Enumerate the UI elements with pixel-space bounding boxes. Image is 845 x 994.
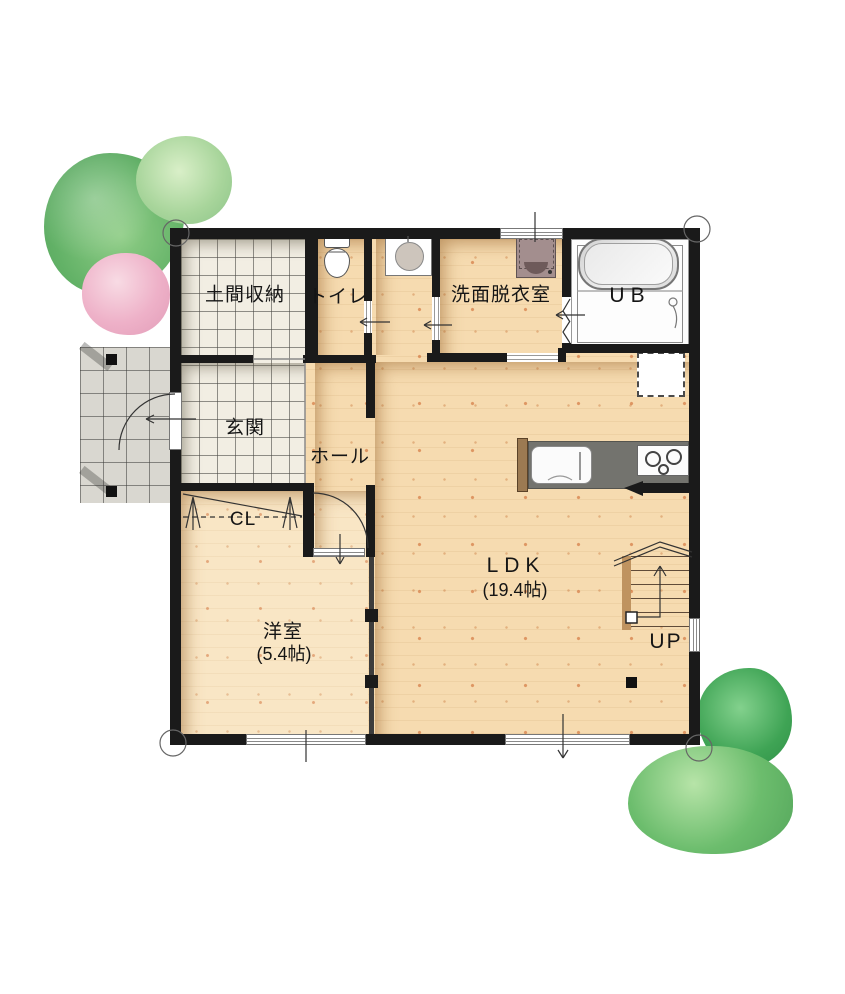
washbasin-bowl — [395, 242, 424, 271]
window — [689, 618, 700, 652]
wall — [181, 355, 253, 363]
room-label-ldk: LDK — [487, 554, 546, 578]
door-threshold — [313, 548, 365, 557]
tree-icon — [628, 746, 793, 854]
wall — [366, 363, 375, 418]
sliding-window — [505, 734, 630, 745]
door-opening — [562, 297, 571, 343]
wall — [303, 355, 376, 363]
porch-post — [106, 354, 117, 365]
tree-icon — [136, 136, 232, 224]
wall — [170, 450, 181, 745]
wall — [562, 344, 689, 353]
wall — [366, 734, 505, 745]
kitchen-end-panel — [517, 438, 528, 492]
stairs-edge — [622, 556, 631, 630]
wall — [303, 483, 314, 557]
bathtub-inner — [584, 243, 673, 285]
wall-post — [365, 675, 378, 688]
room-label-doma: 土間収納 — [205, 280, 285, 307]
wall — [181, 483, 303, 491]
wall — [427, 353, 507, 362]
kitchen-half-wall — [641, 483, 689, 493]
room-label-toilet: トイレ — [308, 282, 368, 309]
burner — [666, 449, 682, 465]
floorplan: 土間収納 トイレ 洗面脱衣室 UB 玄関 ホール CL 洋室 (5.4帖) LD… — [0, 0, 845, 994]
entrance-door-icon — [169, 392, 182, 450]
burner — [658, 464, 669, 475]
flower-bush-icon — [82, 253, 170, 335]
porch-post — [106, 486, 117, 497]
kitchen-sink-icon — [531, 446, 592, 484]
door-opening — [507, 353, 558, 362]
wall — [170, 734, 246, 745]
stairs-icon — [631, 556, 689, 632]
pillar — [626, 677, 637, 688]
wall — [563, 228, 700, 239]
wall — [369, 557, 374, 734]
window — [246, 734, 366, 745]
refrigerator-outline-icon — [637, 352, 685, 397]
wall — [366, 485, 375, 557]
room-label-hall: ホール — [310, 442, 370, 469]
burner — [645, 451, 661, 467]
window — [500, 228, 563, 239]
room-label-genkan: 玄関 — [225, 413, 265, 440]
room-label-closet: CL — [230, 509, 256, 531]
wall — [432, 239, 440, 297]
room-label-bath: UB — [609, 284, 650, 308]
wall — [170, 228, 181, 392]
wall-post — [365, 609, 378, 622]
wall — [689, 228, 700, 618]
wall — [562, 239, 571, 297]
stairs-up-label: UP — [649, 630, 682, 654]
room-western-floor — [181, 491, 368, 734]
wall — [170, 228, 500, 239]
room-size-western: (5.4帖) — [256, 640, 311, 666]
room-size-ldk: (19.4帖) — [482, 576, 547, 602]
wall — [689, 652, 700, 745]
door-opening — [432, 297, 440, 340]
room-label-washroom: 洗面脱衣室 — [451, 280, 551, 307]
